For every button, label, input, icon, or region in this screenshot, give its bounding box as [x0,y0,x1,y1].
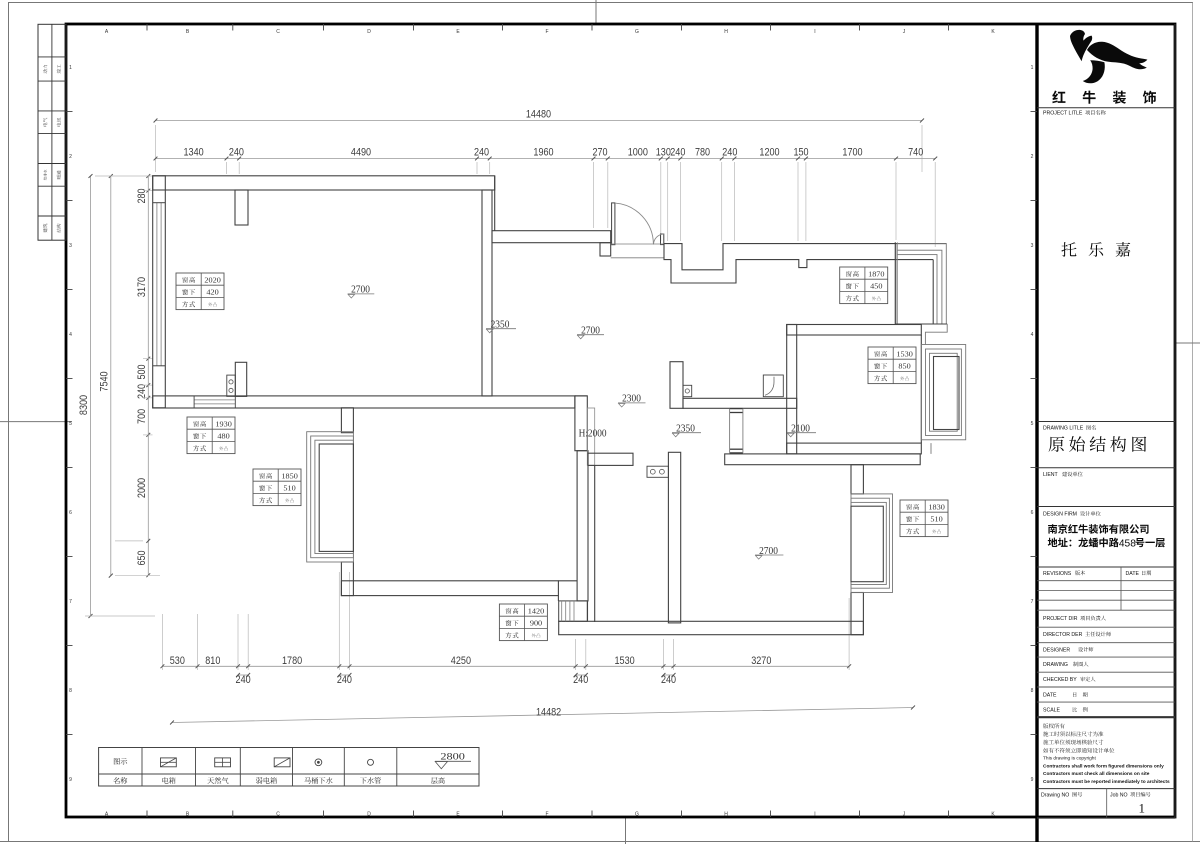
svg-text:DIRECTOR DER: DIRECTOR DER [1043,632,1083,638]
svg-text:2020: 2020 [204,275,221,284]
svg-text:1: 1 [1138,801,1145,816]
svg-text:1870: 1870 [868,269,885,278]
svg-text:510: 510 [930,515,943,524]
svg-text:Contractors must check all dim: Contractors must check all dimensions on… [1043,771,1150,777]
svg-text:4490: 4490 [351,146,371,158]
svg-text:G: G [635,812,639,818]
svg-text:C: C [276,812,280,818]
svg-text:1780: 1780 [282,655,302,667]
svg-text:PROJECT LITLE: PROJECT LITLE [1043,111,1083,117]
svg-text:9: 9 [1031,777,1034,783]
svg-text:1: 1 [1031,65,1034,71]
svg-text:3: 3 [1031,243,1034,249]
svg-text:530: 530 [170,655,185,667]
svg-text:5: 5 [1031,421,1034,427]
svg-text:Drawing NO: Drawing NO [1041,792,1069,798]
svg-text:4: 4 [69,332,72,338]
svg-text:4250: 4250 [451,655,471,667]
svg-text:G: G [635,29,639,35]
svg-text:3: 3 [69,243,72,249]
svg-text:5: 5 [69,421,72,427]
svg-text:8: 8 [69,688,72,694]
svg-text:700: 700 [136,409,148,424]
svg-text:C: C [276,29,280,35]
svg-text:14480: 14480 [526,109,551,121]
svg-text:This drawing is copyright: This drawing is copyright [1043,756,1096,762]
svg-text:DESIGNER: DESIGNER [1043,647,1070,653]
svg-text:150: 150 [793,146,808,158]
svg-text:740: 740 [908,146,923,158]
svg-text:1830: 1830 [928,502,945,511]
svg-text:810: 810 [205,655,220,667]
svg-text:I: I [814,29,815,35]
svg-text:1960: 1960 [533,146,553,158]
svg-text:240: 240 [236,674,251,686]
svg-text:7: 7 [1031,599,1034,605]
svg-text:240: 240 [136,384,148,399]
svg-text:8: 8 [1031,688,1034,694]
svg-text:Contractors shall work form fi: Contractors shall work form figured dime… [1043,764,1164,770]
svg-text:240: 240 [229,146,244,158]
svg-text:240: 240 [573,674,588,686]
svg-text:1000: 1000 [628,146,648,158]
svg-text:DRAWING: DRAWING [1043,662,1068,668]
svg-text:Job NO: Job NO [1110,792,1128,798]
svg-text:PROJECT DIR: PROJECT DIR [1043,616,1078,622]
svg-text:DATE: DATE [1126,571,1140,577]
svg-text:130: 130 [656,146,671,158]
svg-text:850: 850 [898,362,911,371]
svg-text:1850: 1850 [281,471,298,480]
svg-text:1: 1 [69,65,72,71]
svg-text:REVISIONS: REVISIONS [1043,571,1072,577]
svg-text:240: 240 [474,146,489,158]
svg-text:1530: 1530 [615,655,635,667]
svg-text:240: 240 [670,146,685,158]
svg-text:2: 2 [69,154,72,160]
svg-text:450: 450 [870,282,883,291]
svg-text:LIENT: LIENT [1043,472,1059,478]
svg-text:DATE: DATE [1043,693,1057,699]
svg-text:6: 6 [69,510,72,516]
svg-text:2800: 2800 [440,752,465,762]
svg-text:3170: 3170 [136,277,148,297]
svg-text:DESIGN FIRM: DESIGN FIRM [1043,512,1077,518]
svg-text:I: I [814,812,815,818]
svg-text:H: H [724,812,728,818]
svg-text:9: 9 [69,777,72,783]
svg-text:780: 780 [695,146,710,158]
svg-text:420: 420 [206,288,219,297]
svg-text:1200: 1200 [759,146,779,158]
svg-text:1930: 1930 [215,419,232,428]
svg-text:14482: 14482 [536,707,561,719]
svg-text:510: 510 [283,484,296,493]
svg-text:DRAWING LITLE: DRAWING LITLE [1043,426,1084,432]
svg-text:CHECKED BY: CHECKED BY [1043,677,1077,683]
svg-text:240: 240 [337,674,352,686]
svg-text:F: F [545,812,548,818]
svg-text:270: 270 [592,146,607,158]
svg-text:650: 650 [136,550,148,565]
svg-text:3270: 3270 [751,655,771,667]
svg-text:1530: 1530 [896,349,913,358]
svg-text:H: H [724,29,728,35]
svg-text:1340: 1340 [184,146,204,158]
svg-text:H:2000: H:2000 [579,429,607,440]
svg-text:240: 240 [722,146,737,158]
svg-text:458: 458 [1119,538,1136,549]
svg-text:6: 6 [1031,510,1034,516]
svg-text:7540: 7540 [98,371,110,391]
svg-text:SCALE: SCALE [1043,708,1061,714]
svg-text:4: 4 [1031,332,1034,338]
svg-text:F: F [545,29,548,35]
svg-text:Contractors must be reported i: Contractors must be reported immediately… [1043,779,1170,785]
svg-text:240: 240 [661,674,676,686]
svg-text:1420: 1420 [528,606,545,615]
svg-text:7: 7 [69,599,72,605]
svg-text:2: 2 [1031,154,1034,160]
svg-text:500: 500 [136,364,148,379]
svg-text:D: D [367,812,371,818]
svg-text:1700: 1700 [842,146,862,158]
svg-text:900: 900 [530,619,543,628]
svg-text:8300: 8300 [78,395,90,415]
svg-text:D: D [367,29,371,35]
svg-text:480: 480 [217,432,230,441]
svg-text:2000: 2000 [136,478,148,498]
